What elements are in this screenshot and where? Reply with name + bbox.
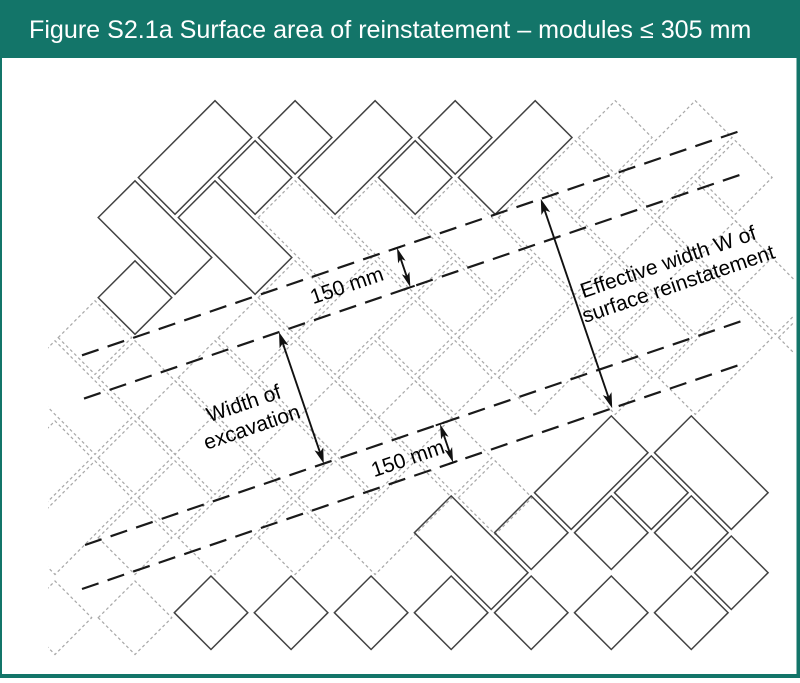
svg-text:Figure S2.1a Surface area of r: Figure S2.1a Surface area of reinstateme… [29,16,751,44]
